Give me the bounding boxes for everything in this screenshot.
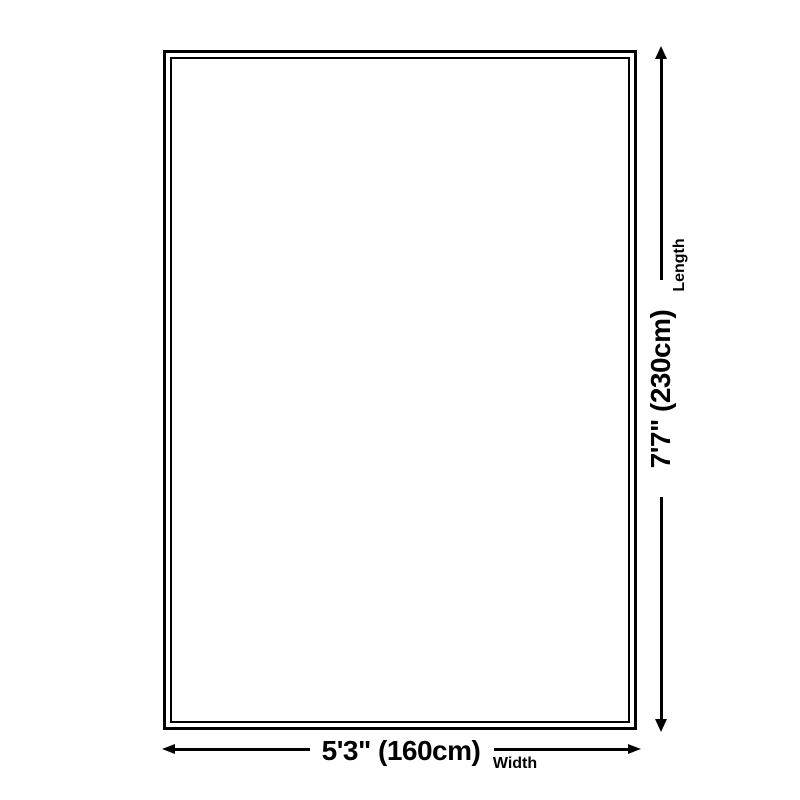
length-axis-label: Length <box>671 238 689 291</box>
length-arrow-line-top <box>660 57 663 280</box>
length-arrow-line-bottom <box>660 497 663 720</box>
width-arrow-line-right <box>494 748 630 751</box>
width-axis-label: Width <box>493 755 537 773</box>
rug-outline <box>163 50 637 730</box>
arrow-down-head-icon <box>655 719 667 732</box>
arrow-right-head-icon <box>628 744 641 754</box>
width-arrow-line-left <box>170 748 310 751</box>
rug-inner-outline <box>170 57 630 723</box>
rug-size-diagram: Length 7'7" (230cm) 5'3" (160cm) Width <box>0 0 800 800</box>
length-dimension-value: 7'7" (230cm) <box>645 310 677 469</box>
width-dimension-value: 5'3" (160cm) <box>322 735 481 767</box>
